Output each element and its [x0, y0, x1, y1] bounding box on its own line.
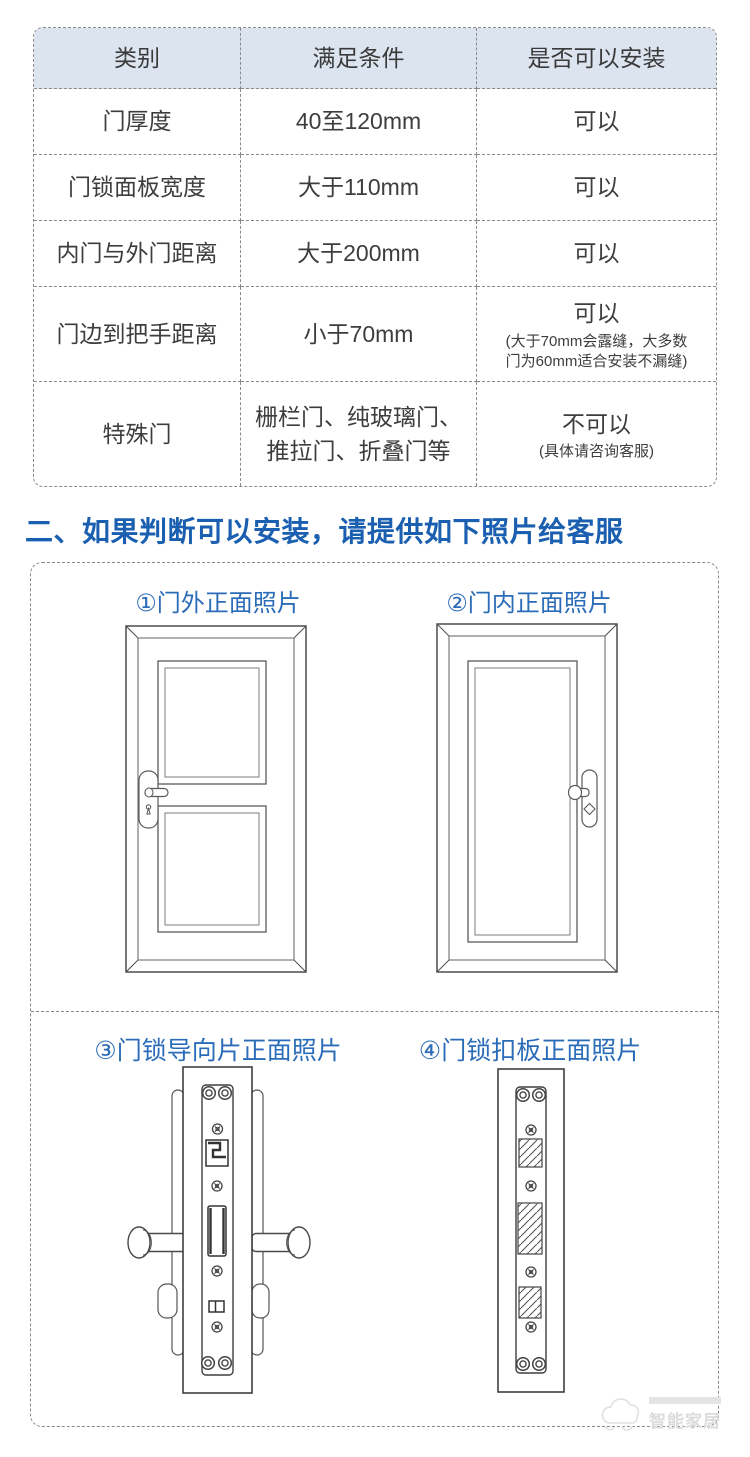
cell-condition: 小于70mm — [304, 317, 414, 352]
deadbolt — [208, 1206, 226, 1256]
screw-icon — [213, 1124, 223, 1134]
table-row: 可以 — [477, 155, 716, 221]
header-label: 是否可以安装 — [528, 41, 666, 76]
screw-icon — [219, 1087, 232, 1100]
screw-icon — [533, 1089, 546, 1102]
table-row: 小于70mm — [241, 287, 477, 382]
label-strike-plate-photo: ④门锁扣板正面照片 — [398, 1031, 662, 1067]
screw-icon — [517, 1358, 530, 1371]
cell-condition: 大于200mm — [297, 236, 420, 271]
door-exterior-diagram — [125, 625, 307, 973]
table-row: 可以 — [477, 89, 716, 155]
screw-icon — [526, 1322, 536, 1332]
screw-icon — [533, 1358, 546, 1371]
header-label: 满足条件 — [313, 41, 405, 76]
watermark: 智能家居 — [598, 1388, 748, 1440]
table-row: 门厚度 — [34, 89, 241, 155]
label-lock-guide-plate-photo: ③门锁导向片正面照片 — [83, 1031, 353, 1067]
section-heading: 二、如果判断可以安装，请提供如下照片给客服 — [25, 510, 725, 550]
cloud-icon — [598, 1397, 644, 1431]
strike-plate-diagram — [497, 1068, 565, 1393]
table-row: 大于110mm — [241, 155, 477, 221]
table-row: 门边到把手距离 — [34, 287, 241, 382]
screw-icon — [517, 1089, 530, 1102]
cell-category: 门边到把手距离 — [57, 317, 218, 352]
latch-bolt — [206, 1140, 228, 1166]
thumb-knob — [252, 1284, 269, 1318]
table-row: 可以 — [477, 221, 716, 287]
cell-category: 门锁面板宽度 — [68, 170, 206, 205]
panel-divider — [31, 1011, 718, 1012]
cell-condition: 推拉门、折叠门等 — [267, 434, 451, 469]
screw-icon — [212, 1266, 222, 1276]
cell-category: 特殊门 — [103, 417, 172, 452]
table-row: 内门与外门距离 — [34, 221, 241, 287]
screw-icon — [203, 1087, 216, 1100]
table-header-category: 类别 — [34, 28, 241, 89]
cell-result: 可以 — [574, 170, 620, 205]
table-header-condition: 满足条件 — [241, 28, 477, 89]
screw-icon — [219, 1357, 232, 1370]
watermark-text: 智能家居 — [649, 1407, 721, 1432]
cell-result-note: (大于70mm会露缝，大多数 — [506, 332, 688, 352]
cell-category: 门厚度 — [103, 104, 172, 139]
table-header-installable: 是否可以安装 — [477, 28, 716, 89]
label-door-exterior-photo: ①门外正面照片 — [115, 583, 321, 618]
header-label: 类别 — [114, 41, 160, 76]
table-row: 大于200mm — [241, 221, 477, 287]
cell-category: 内门与外门距离 — [57, 236, 218, 271]
latch-opening-hatch — [519, 1139, 542, 1167]
screw-icon — [526, 1181, 536, 1191]
table-row: 可以 (大于70mm会露缝，大多数 门为60mm适合安装不漏缝) — [477, 287, 716, 382]
table-row: 栅栏门、纯玻璃门、 推拉门、折叠门等 — [241, 382, 477, 486]
screw-icon — [526, 1125, 536, 1135]
cell-result-note: (具体请咨询客服) — [539, 442, 654, 462]
table-row: 40至120mm — [241, 89, 477, 155]
cell-result: 可以 — [574, 236, 620, 271]
label-door-interior-photo: ②门内正面照片 — [426, 583, 632, 618]
cell-result-note: 门为60mm适合安装不漏缝) — [506, 352, 688, 372]
cell-condition: 栅栏门、纯玻璃门、 — [255, 400, 462, 435]
cell-condition: 40至120mm — [296, 104, 421, 139]
screw-icon — [212, 1322, 222, 1332]
installation-spec-table: 类别 满足条件 是否可以安装 门厚度 40至120mm 可以 门锁面板宽度 大于… — [33, 27, 717, 487]
cell-condition: 大于110mm — [298, 170, 419, 205]
anti-lock-button — [209, 1301, 224, 1312]
table-row: 门锁面板宽度 — [34, 155, 241, 221]
cell-result: 可以 — [574, 104, 620, 139]
cell-result: 可以 — [574, 296, 620, 331]
cell-result: 不可以 — [562, 407, 631, 442]
watermark-line — [649, 1397, 721, 1404]
screw-icon — [212, 1181, 222, 1191]
screw-icon — [202, 1357, 215, 1370]
thumb-knob — [158, 1284, 177, 1318]
lock-guide-plate-diagram — [126, 1065, 312, 1400]
screw-icon — [526, 1267, 536, 1277]
deadbolt-opening-hatch — [518, 1203, 542, 1254]
table-row: 特殊门 — [34, 382, 241, 486]
aux-opening-hatch — [519, 1287, 541, 1318]
door-interior-diagram — [436, 623, 618, 973]
table-row: 不可以 (具体请咨询客服) — [477, 382, 716, 486]
